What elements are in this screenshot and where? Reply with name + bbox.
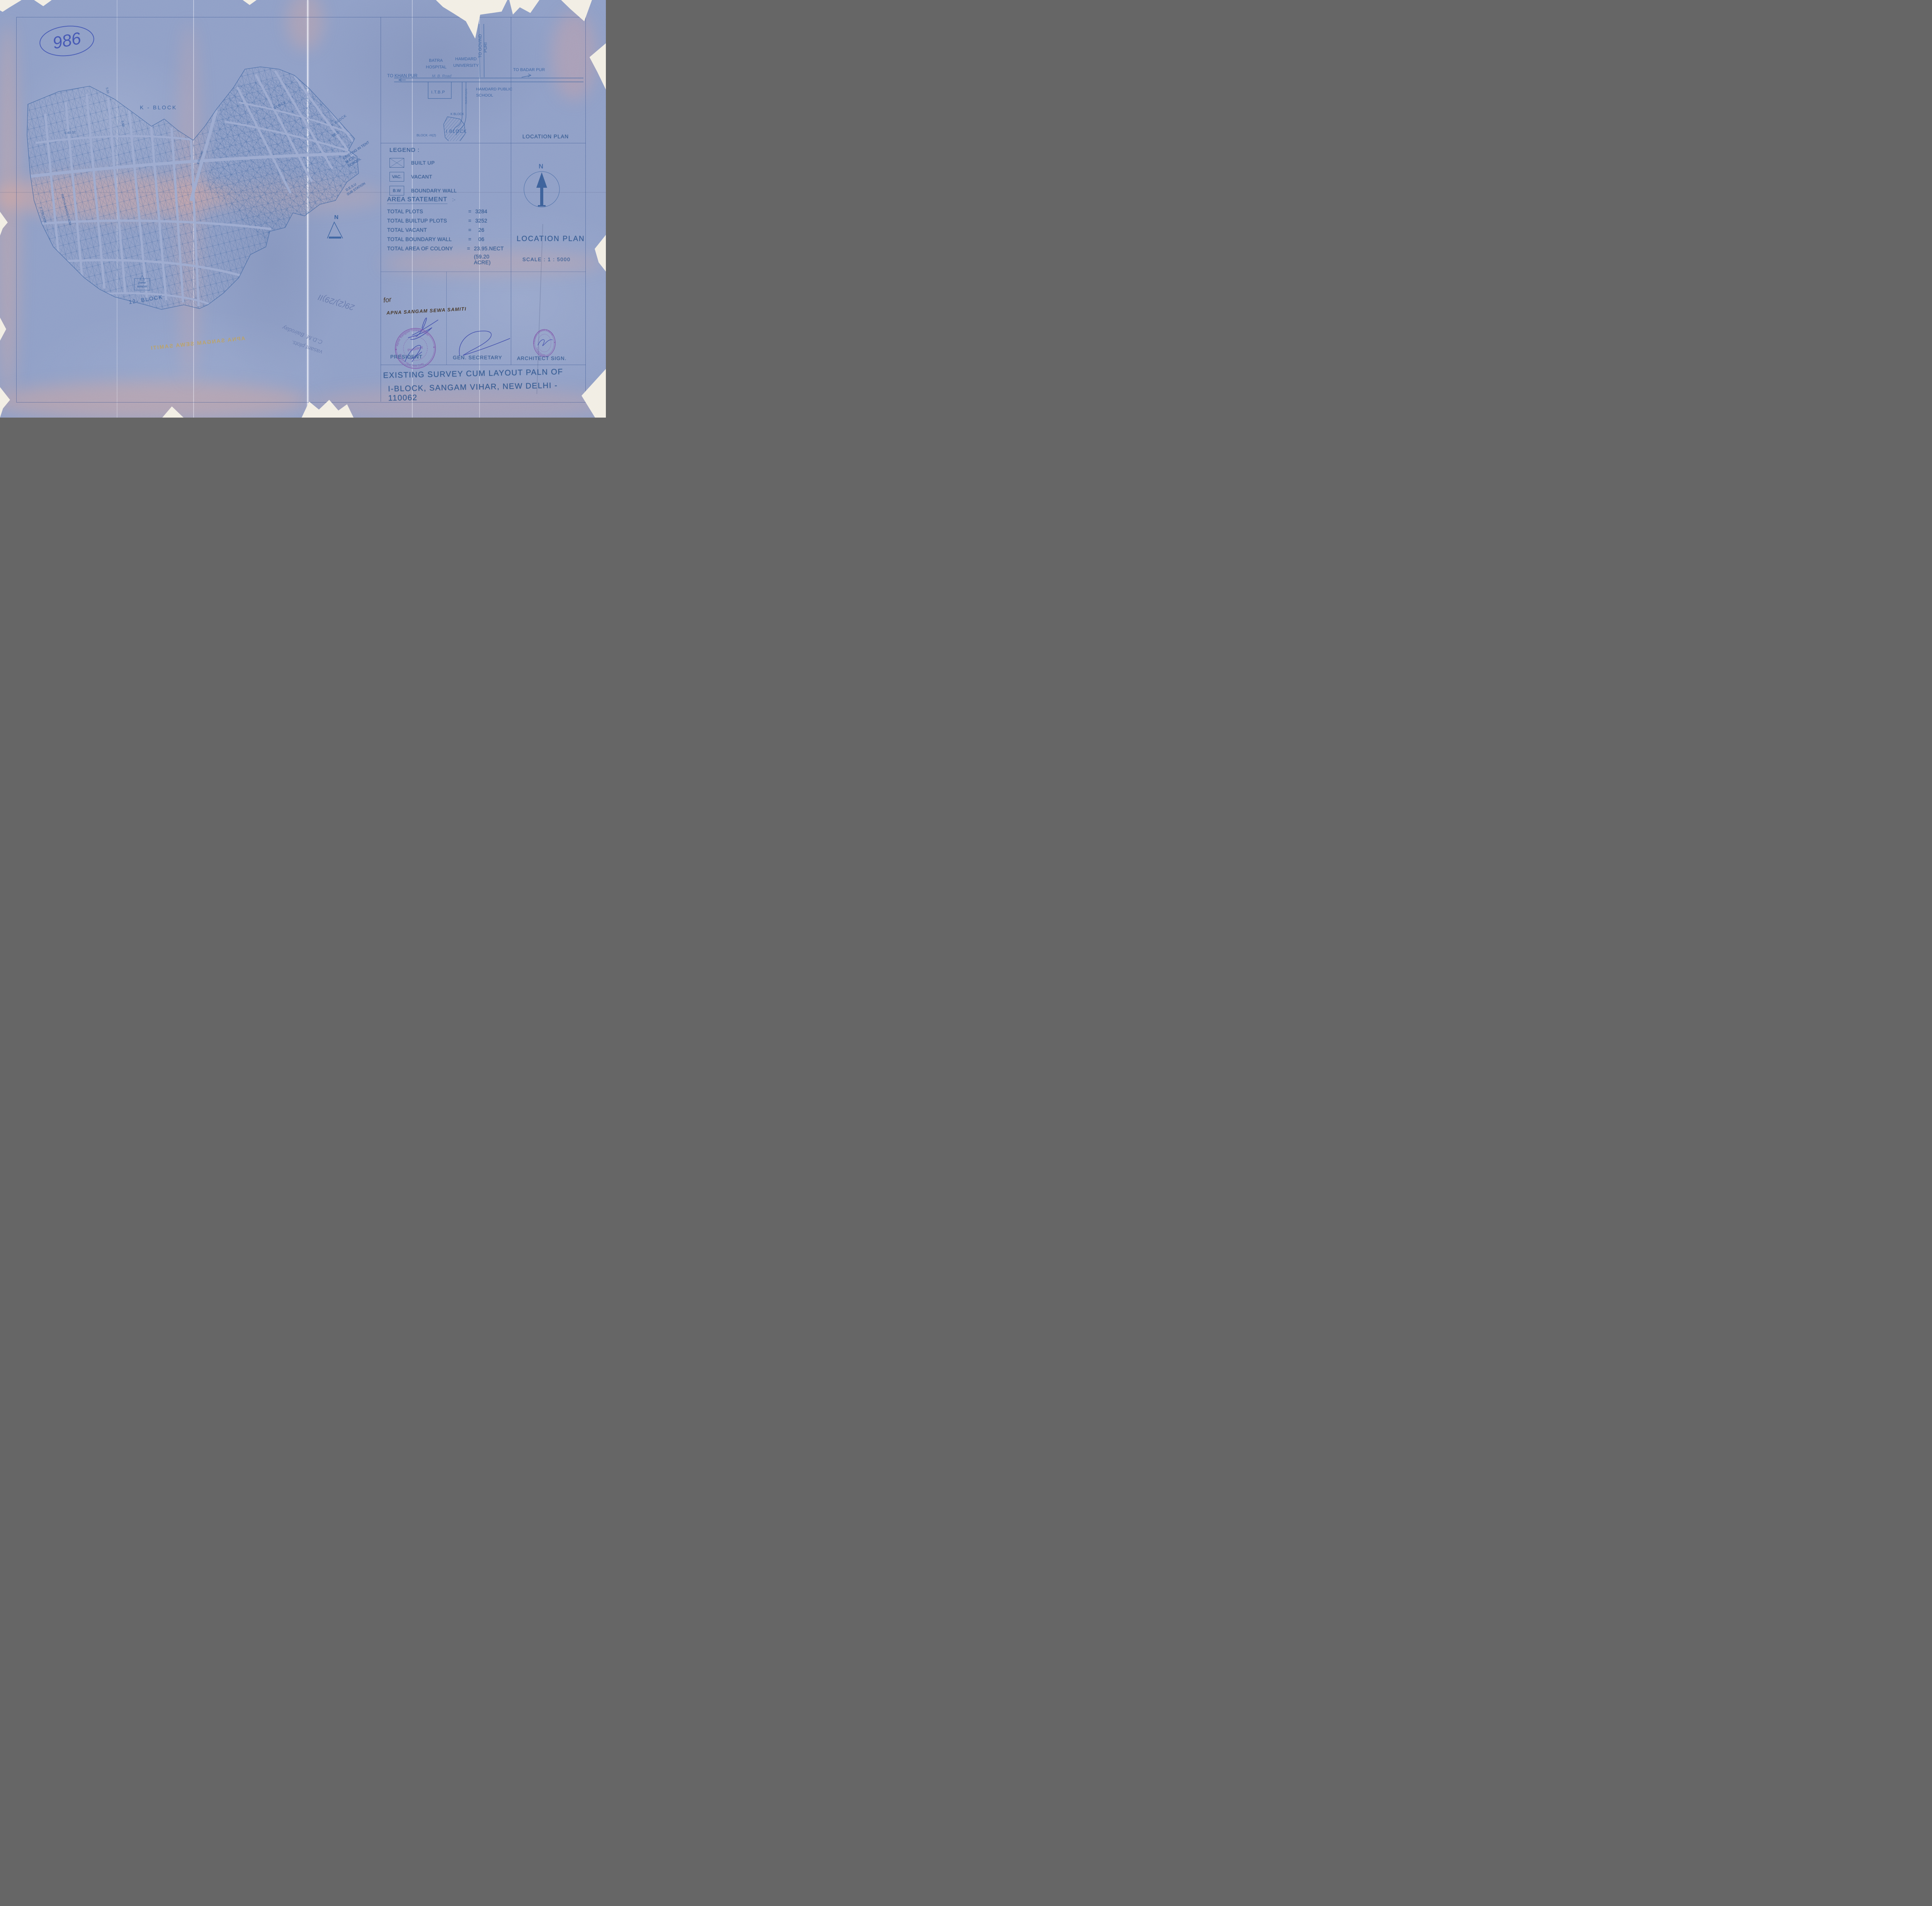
builtup-symbol-icon — [389, 158, 404, 168]
torn-edge-top-center — [243, 0, 257, 5]
legend: LEGEND : BUILT UP VAC. VACANT B.W BOUNDA… — [389, 147, 505, 200]
mandir-label: MANDIR — [137, 285, 147, 288]
label-ratia-marg: RATIA MARG — [464, 89, 467, 104]
handwritten-for: for — [383, 296, 392, 305]
map-north-marker: N — [327, 214, 343, 238]
area-statement-heading: AREA STATEMENT — [387, 196, 447, 204]
compass-arrow-icon — [536, 172, 547, 207]
legend-row-vacant: VAC. VACANT — [389, 172, 505, 182]
legend-label-boundary-wall: BOUNDARY WALL — [411, 188, 457, 194]
area-row-boundary-wall: TOTAL BOUNDARY WALL = 06 — [387, 236, 507, 242]
map-bleed-text: APNA SANGAM SEWA SAMITI — [150, 335, 246, 351]
architect-stamp-top-text: SUMER CHAND KHATRI — [533, 329, 554, 343]
president-stamp-top-text: Apna Sangam Sewa Samiti — [395, 328, 430, 347]
map-street-640: 6.40 ST. — [65, 130, 77, 135]
torn-edge-top-left — [0, 0, 22, 14]
compass-n-letter: N — [539, 163, 543, 170]
area-eq-4: = — [463, 246, 474, 265]
area-value-4b: (59.20 ACRE) — [474, 254, 507, 265]
area-value-0: 3284 — [475, 209, 487, 214]
label-to-badar-pur: TO BADAR PUR — [513, 68, 545, 72]
location-sketch: TO KHAN PUR TO BADAR PUR M. B. Road BATR… — [383, 19, 585, 141]
title-block: EXISTING SURVEY CUM LAYOUT PALN OF I-BLO… — [383, 367, 588, 403]
area-eq-2: = — [464, 227, 475, 233]
president-stamp-star-left: ★ — [395, 348, 397, 351]
sheet-number-986: 986 — [37, 22, 99, 61]
label-sketch-i-block: I BLOCK — [446, 129, 467, 134]
blueprint-sheet: 986 — [0, 0, 606, 418]
boundary-wall-symbol: B.W — [389, 186, 404, 195]
area-row-vacant: TOTAL VACANT = 26 — [387, 227, 507, 233]
divider-v1 — [381, 17, 381, 402]
area-eq-0: = — [464, 209, 475, 214]
torn-edge-right-1 — [588, 43, 606, 90]
area-row-total-plots: TOTAL PLOTS = 3284 — [387, 209, 507, 214]
svg-text:Apna Sangam Sewa Samiti: Apna Sangam Sewa Samiti — [395, 328, 430, 347]
label-mb-road: M. B. Road — [432, 74, 451, 78]
north-compass: N — [522, 162, 564, 211]
architect-stamp-signature — [538, 340, 553, 346]
gen-secretary-label: GEN. SECRETARY — [453, 355, 502, 360]
location-plan-heading: LOCATION PLAN — [517, 235, 585, 243]
area-eq-3: = — [464, 236, 475, 242]
label-hps-1: HAMDARD PUBLIC — [476, 87, 512, 92]
area-label-4: TOTAL AREA OF COLONY — [387, 246, 463, 265]
president-stamp: Apna Sangam Sewa Samiti Sangam Vihar, Ne… — [393, 326, 438, 371]
divider-h1 — [381, 143, 586, 143]
architect-sign-label: ARCHITECT SIGN. — [517, 355, 566, 361]
area-value-1: 3252 — [475, 218, 487, 224]
torn-edge-top-right-2 — [509, 0, 539, 16]
area-label-3: TOTAL BOUNDARY WALL — [387, 236, 464, 242]
torn-edge-left-1 — [0, 212, 8, 236]
label-batra-2: HOSPITAL — [426, 65, 447, 70]
vacant-symbol: VAC. — [389, 172, 404, 182]
farm-label: FARM — [139, 282, 146, 284]
legend-label-vacant: VACANT — [411, 174, 432, 180]
area-label-0: TOTAL PLOTS — [387, 209, 464, 214]
torn-edge-bottom-left — [0, 387, 10, 418]
location-plan-corner-label: LOCATION PLAN — [522, 134, 569, 139]
torn-edge-left-2 — [0, 318, 6, 341]
area-value-4: 23.95.NECT — [474, 246, 507, 251]
label-hamdard-2: UNIVERSITY — [453, 63, 479, 68]
map-north-letter: N — [334, 214, 338, 221]
map-street-550a: 5.50 — [105, 87, 110, 94]
president-stamp-star-right: ★ — [433, 346, 435, 349]
puri-line: PURI — [483, 42, 488, 53]
label-hps-2: SCHOOL — [476, 93, 493, 98]
label-block-h2: BLOCK -H(2) — [417, 133, 436, 137]
area-value-2: 26 — [478, 227, 485, 233]
torn-edge-right-2 — [593, 235, 606, 272]
sheet-number-text: 986 — [51, 29, 83, 53]
area-statement-heading-suffix: :- — [452, 196, 456, 202]
svg-text:SUMER CHAND KHATRI: SUMER CHAND KHATRI — [533, 329, 554, 343]
legend-label-builtup: BUILT UP — [411, 160, 435, 166]
area-label-1: TOTAL BUILTUP PLOTS — [387, 218, 464, 224]
label-to-khan-pur: TO KHAN PUR — [387, 74, 417, 78]
location-plan-scale: SCALE : 1 : 5000 — [522, 257, 570, 262]
architect-stamp-star-right: ★ — [554, 341, 556, 344]
label-sketch-k-block: K BLOCK — [451, 112, 464, 116]
area-row-builtup: TOTAL BUILTUP PLOTS = 3252 — [387, 218, 507, 224]
divider-h2 — [381, 272, 586, 272]
north-triangle-icon — [327, 222, 343, 238]
architect-stamp-star-left: ★ — [533, 342, 535, 345]
legend-row-builtup: BUILT UP — [389, 158, 505, 168]
label-itbp: I.T.B.P — [431, 90, 445, 95]
architect-stamp: SUMER CHAND KHATRI CA /97/21234 ★ ★ — [532, 328, 556, 358]
to-govind-line: TO GOVIND — [478, 34, 483, 58]
map-label-k-block: K - BLOCK — [140, 104, 177, 110]
label-to-govind-puri: TO GOVIND PURI — [478, 34, 488, 58]
torn-edge-top-left-2 — [34, 0, 52, 6]
area-value-3: 06 — [478, 236, 485, 242]
torn-edge-bottom-small — [162, 406, 184, 418]
sketch-roads — [394, 24, 583, 135]
legend-heading: LEGEND : — [389, 147, 505, 153]
area-row-colony: TOTAL AREA OF COLONY = 23.95.NECT (59.20… — [387, 246, 507, 265]
area-eq-1: = — [464, 218, 475, 224]
label-batra-1: BATRA — [429, 58, 443, 63]
area-statement: AREA STATEMENT :- TOTAL PLOTS = 3284 TOT… — [387, 196, 507, 269]
label-hamdard-1: HAMDARD — [455, 57, 477, 61]
legend-row-boundary-wall: B.W BOUNDARY WALL — [389, 186, 505, 195]
area-label-2: TOTAL VACANT — [387, 227, 464, 233]
president-label: PRESIDENT — [390, 354, 422, 360]
